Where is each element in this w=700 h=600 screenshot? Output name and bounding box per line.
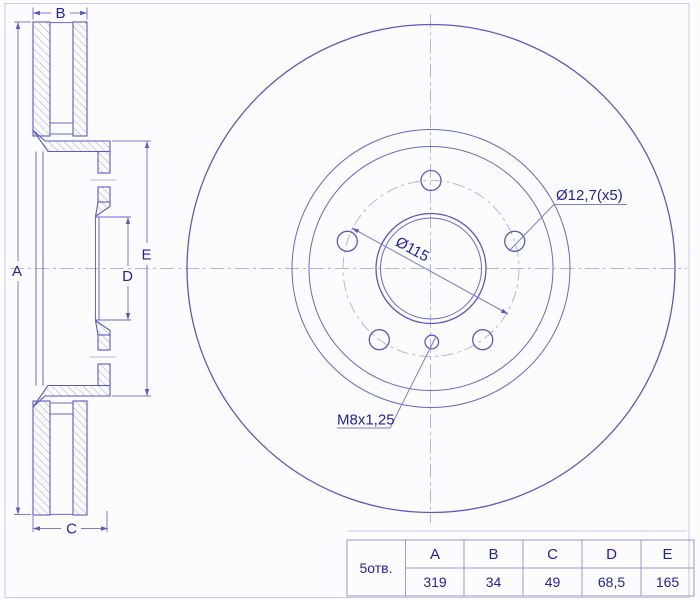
bore-chamfer-section — [96, 321, 111, 336]
spec-table: 5отв. A B C D E 319 34 49 68,5 165 — [347, 540, 694, 596]
dimension-label-c: C — [66, 521, 77, 538]
brake-disc-technical-drawing: A B C D E — [0, 0, 700, 600]
service-thread-hole — [425, 335, 439, 349]
table-header-cell: E — [662, 546, 672, 563]
dimension-label-d: D — [122, 268, 133, 285]
bolt-hole-callout: Ø12,7(x5) — [509, 187, 627, 251]
bore-chamfer-section — [96, 202, 111, 217]
table-row-header: 5отв. — [359, 560, 392, 576]
mounting-flange-section — [98, 187, 110, 202]
table-value-cell: 49 — [545, 574, 561, 590]
drawing-frame — [5, 4, 689, 598]
friction-plate-section — [73, 401, 87, 515]
dimension-d: D — [122, 217, 133, 320]
table-header-cell: D — [606, 546, 617, 563]
arrowhead — [501, 309, 508, 314]
table-value-cell: 165 — [656, 574, 680, 590]
friction-plate-section — [33, 401, 50, 515]
dimension-label-b: B — [55, 5, 65, 22]
drawing-canvas: A B C D E — [0, 0, 700, 600]
arrowhead — [33, 526, 40, 530]
arrowhead — [126, 313, 130, 320]
friction-plate-section — [73, 22, 87, 136]
table-value-cell: 34 — [486, 574, 502, 590]
dimension-label-e: E — [141, 247, 151, 264]
mounting-flange-section — [98, 152, 110, 174]
arrowhead — [33, 11, 40, 15]
arrowhead — [16, 508, 20, 515]
table-value-cell: 319 — [423, 574, 447, 590]
mounting-flange-section — [98, 364, 110, 386]
table-header-cell: B — [488, 546, 498, 563]
dimension-b: B — [33, 5, 87, 22]
table-header-cell: A — [430, 546, 440, 563]
arrowhead — [145, 141, 149, 148]
arrowhead — [16, 22, 20, 29]
table-value-cell: 68,5 — [598, 574, 625, 590]
center-lines — [10, 14, 687, 523]
bolt-hole-dia-label: Ø12,7(x5) — [556, 187, 623, 204]
friction-plate-section — [33, 22, 50, 136]
wheel-bolt-hole — [473, 330, 493, 350]
arrowhead — [126, 217, 130, 224]
thread-spec-label: M8x1,25 — [337, 412, 395, 429]
arrowhead — [80, 11, 87, 15]
arrowhead — [145, 389, 149, 396]
dimension-label-a: A — [12, 263, 22, 280]
table-header-cell: C — [547, 546, 558, 563]
mounting-flange-section — [98, 335, 110, 350]
